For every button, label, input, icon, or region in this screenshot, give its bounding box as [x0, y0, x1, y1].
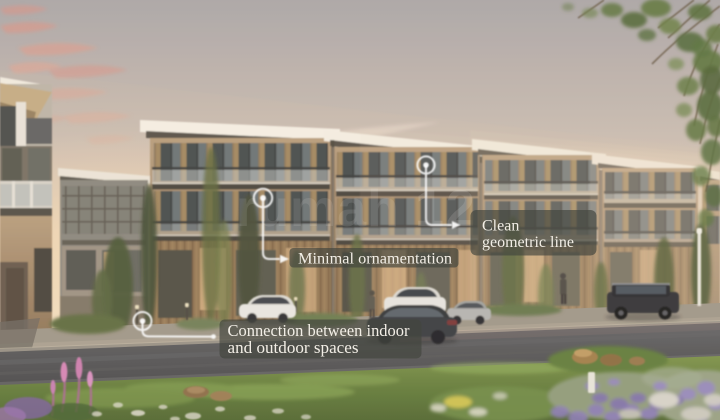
svg-text:and outdoor spaces: and outdoor spaces — [228, 338, 359, 357]
svg-text:Clean: Clean — [482, 217, 519, 234]
svg-text:Minimal ornamentation: Minimal ornamentation — [298, 250, 452, 267]
svg-text:geometric line: geometric line — [482, 234, 574, 251]
